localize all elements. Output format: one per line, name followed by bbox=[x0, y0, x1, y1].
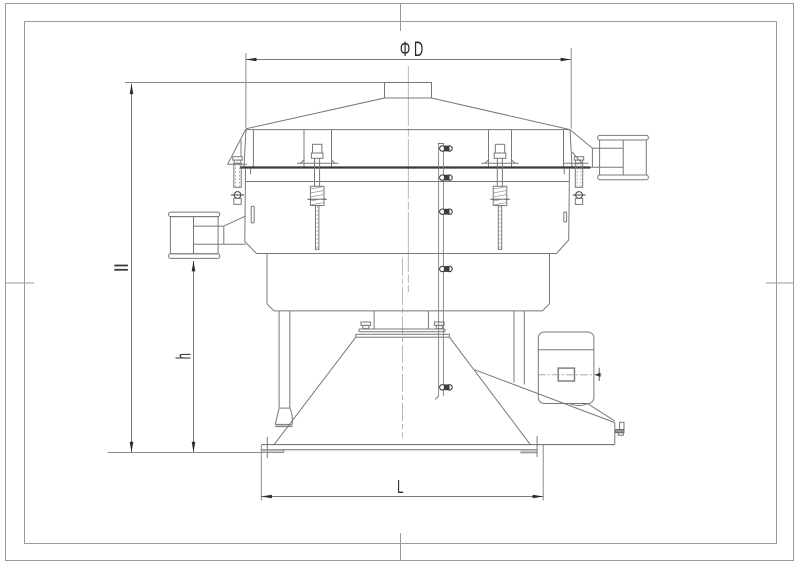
svg-text:L: L bbox=[397, 477, 404, 497]
svg-text:Φ D: Φ D bbox=[400, 37, 423, 61]
svg-text:h: h bbox=[173, 353, 195, 359]
